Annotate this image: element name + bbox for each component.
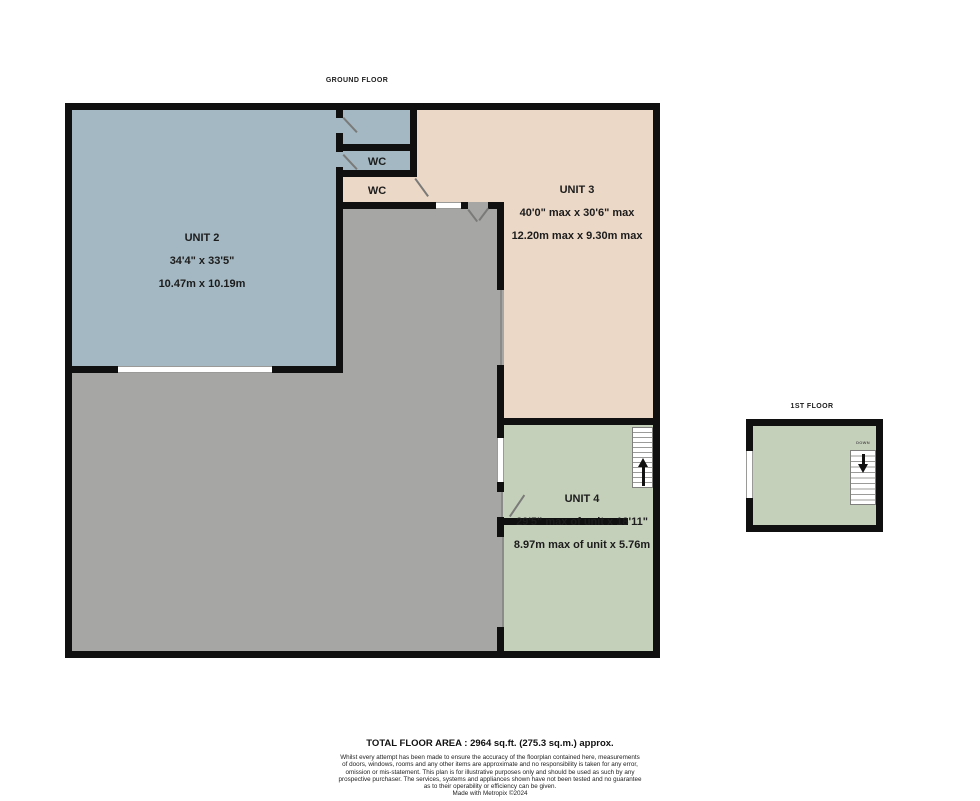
first-floor-title: 1ST FLOOR — [762, 403, 862, 410]
wall-segment — [336, 170, 417, 177]
stairs-arrow-up-icon — [638, 458, 648, 467]
wall-segment — [746, 525, 883, 532]
unit3-name: UNIT 3 — [477, 185, 677, 197]
wall-segment — [65, 366, 118, 373]
staircase-down — [850, 450, 876, 505]
wall-segment — [336, 133, 343, 152]
unit3-dim-metric: 12.20m max x 9.30m max — [477, 231, 677, 243]
unit4-dim-imperial: 29'5" max of unit x 18'11" — [482, 517, 682, 529]
window — [118, 366, 272, 373]
boundary-line — [500, 290, 502, 365]
wall-segment — [410, 103, 417, 175]
unit3-dim-imperial: 40'0" max x 30'6" max — [477, 208, 677, 220]
metropix-credit: Made with Metropix ©2024 — [310, 790, 670, 797]
total-floor-area: TOTAL FLOOR AREA : 2964 sq.ft. (275.3 sq… — [240, 738, 740, 749]
wc2-label: WC — [347, 185, 407, 197]
wall-segment — [746, 419, 883, 426]
ground-floor-title: GROUND FLOOR — [307, 77, 407, 84]
window — [497, 438, 504, 482]
wall-segment — [461, 202, 468, 209]
wall-segment — [65, 103, 72, 658]
unit3-label: UNIT 3 40'0" max x 30'6" max 12.20m max … — [477, 173, 677, 254]
unit2-dim-metric: 10.47m x 10.19m — [102, 279, 302, 291]
unit4-label: UNIT 4 29'5" max of unit x 18'11" 8.97m … — [482, 482, 682, 563]
wall-segment — [336, 167, 343, 373]
window — [746, 451, 753, 498]
wall-segment — [65, 103, 660, 110]
unit2-label: UNIT 2 34'4" x 33'5" 10.47m x 10.19m — [102, 221, 302, 302]
unit2-name: UNIT 2 — [102, 233, 302, 245]
staircase-up — [632, 427, 653, 488]
disclaimer-text: Whilst every attempt has been made to en… — [310, 754, 670, 790]
wall-segment — [343, 144, 410, 151]
wall-segment — [876, 419, 883, 532]
wc1-label: WC — [347, 156, 407, 168]
wall-segment — [497, 627, 504, 658]
wall-segment — [336, 202, 436, 209]
wall-segment — [336, 103, 343, 118]
wall-segment — [272, 366, 343, 373]
wall-segment — [65, 651, 660, 658]
wall-segment — [497, 418, 660, 425]
open-area-lower — [72, 366, 504, 658]
floorplan-page: GROUND FLOOR — [0, 0, 980, 801]
stairs-down-label: DOWN — [845, 440, 881, 445]
wall-segment — [497, 365, 504, 438]
unit4-dim-metric: 8.97m max of unit x 5.76m — [482, 540, 682, 552]
stairs-arrow-down-icon — [858, 464, 868, 473]
unit4-name: UNIT 4 — [482, 494, 682, 506]
window — [436, 202, 461, 209]
unit2-dim-imperial: 34'4" x 33'5" — [102, 256, 302, 268]
